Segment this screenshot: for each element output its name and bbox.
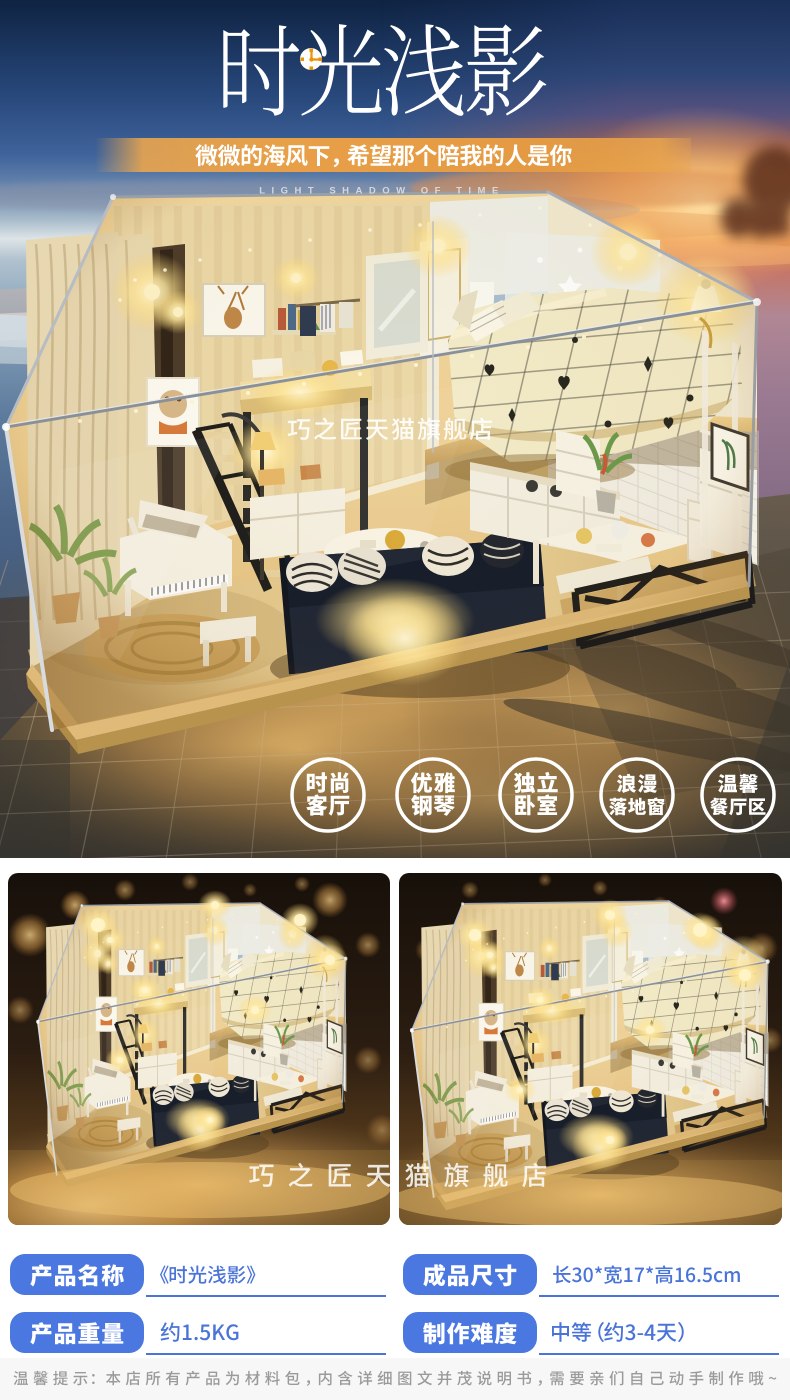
svg-text:LIGHT SHADOW OF TIME: LIGHT SHADOW OF TIME	[259, 186, 505, 197]
